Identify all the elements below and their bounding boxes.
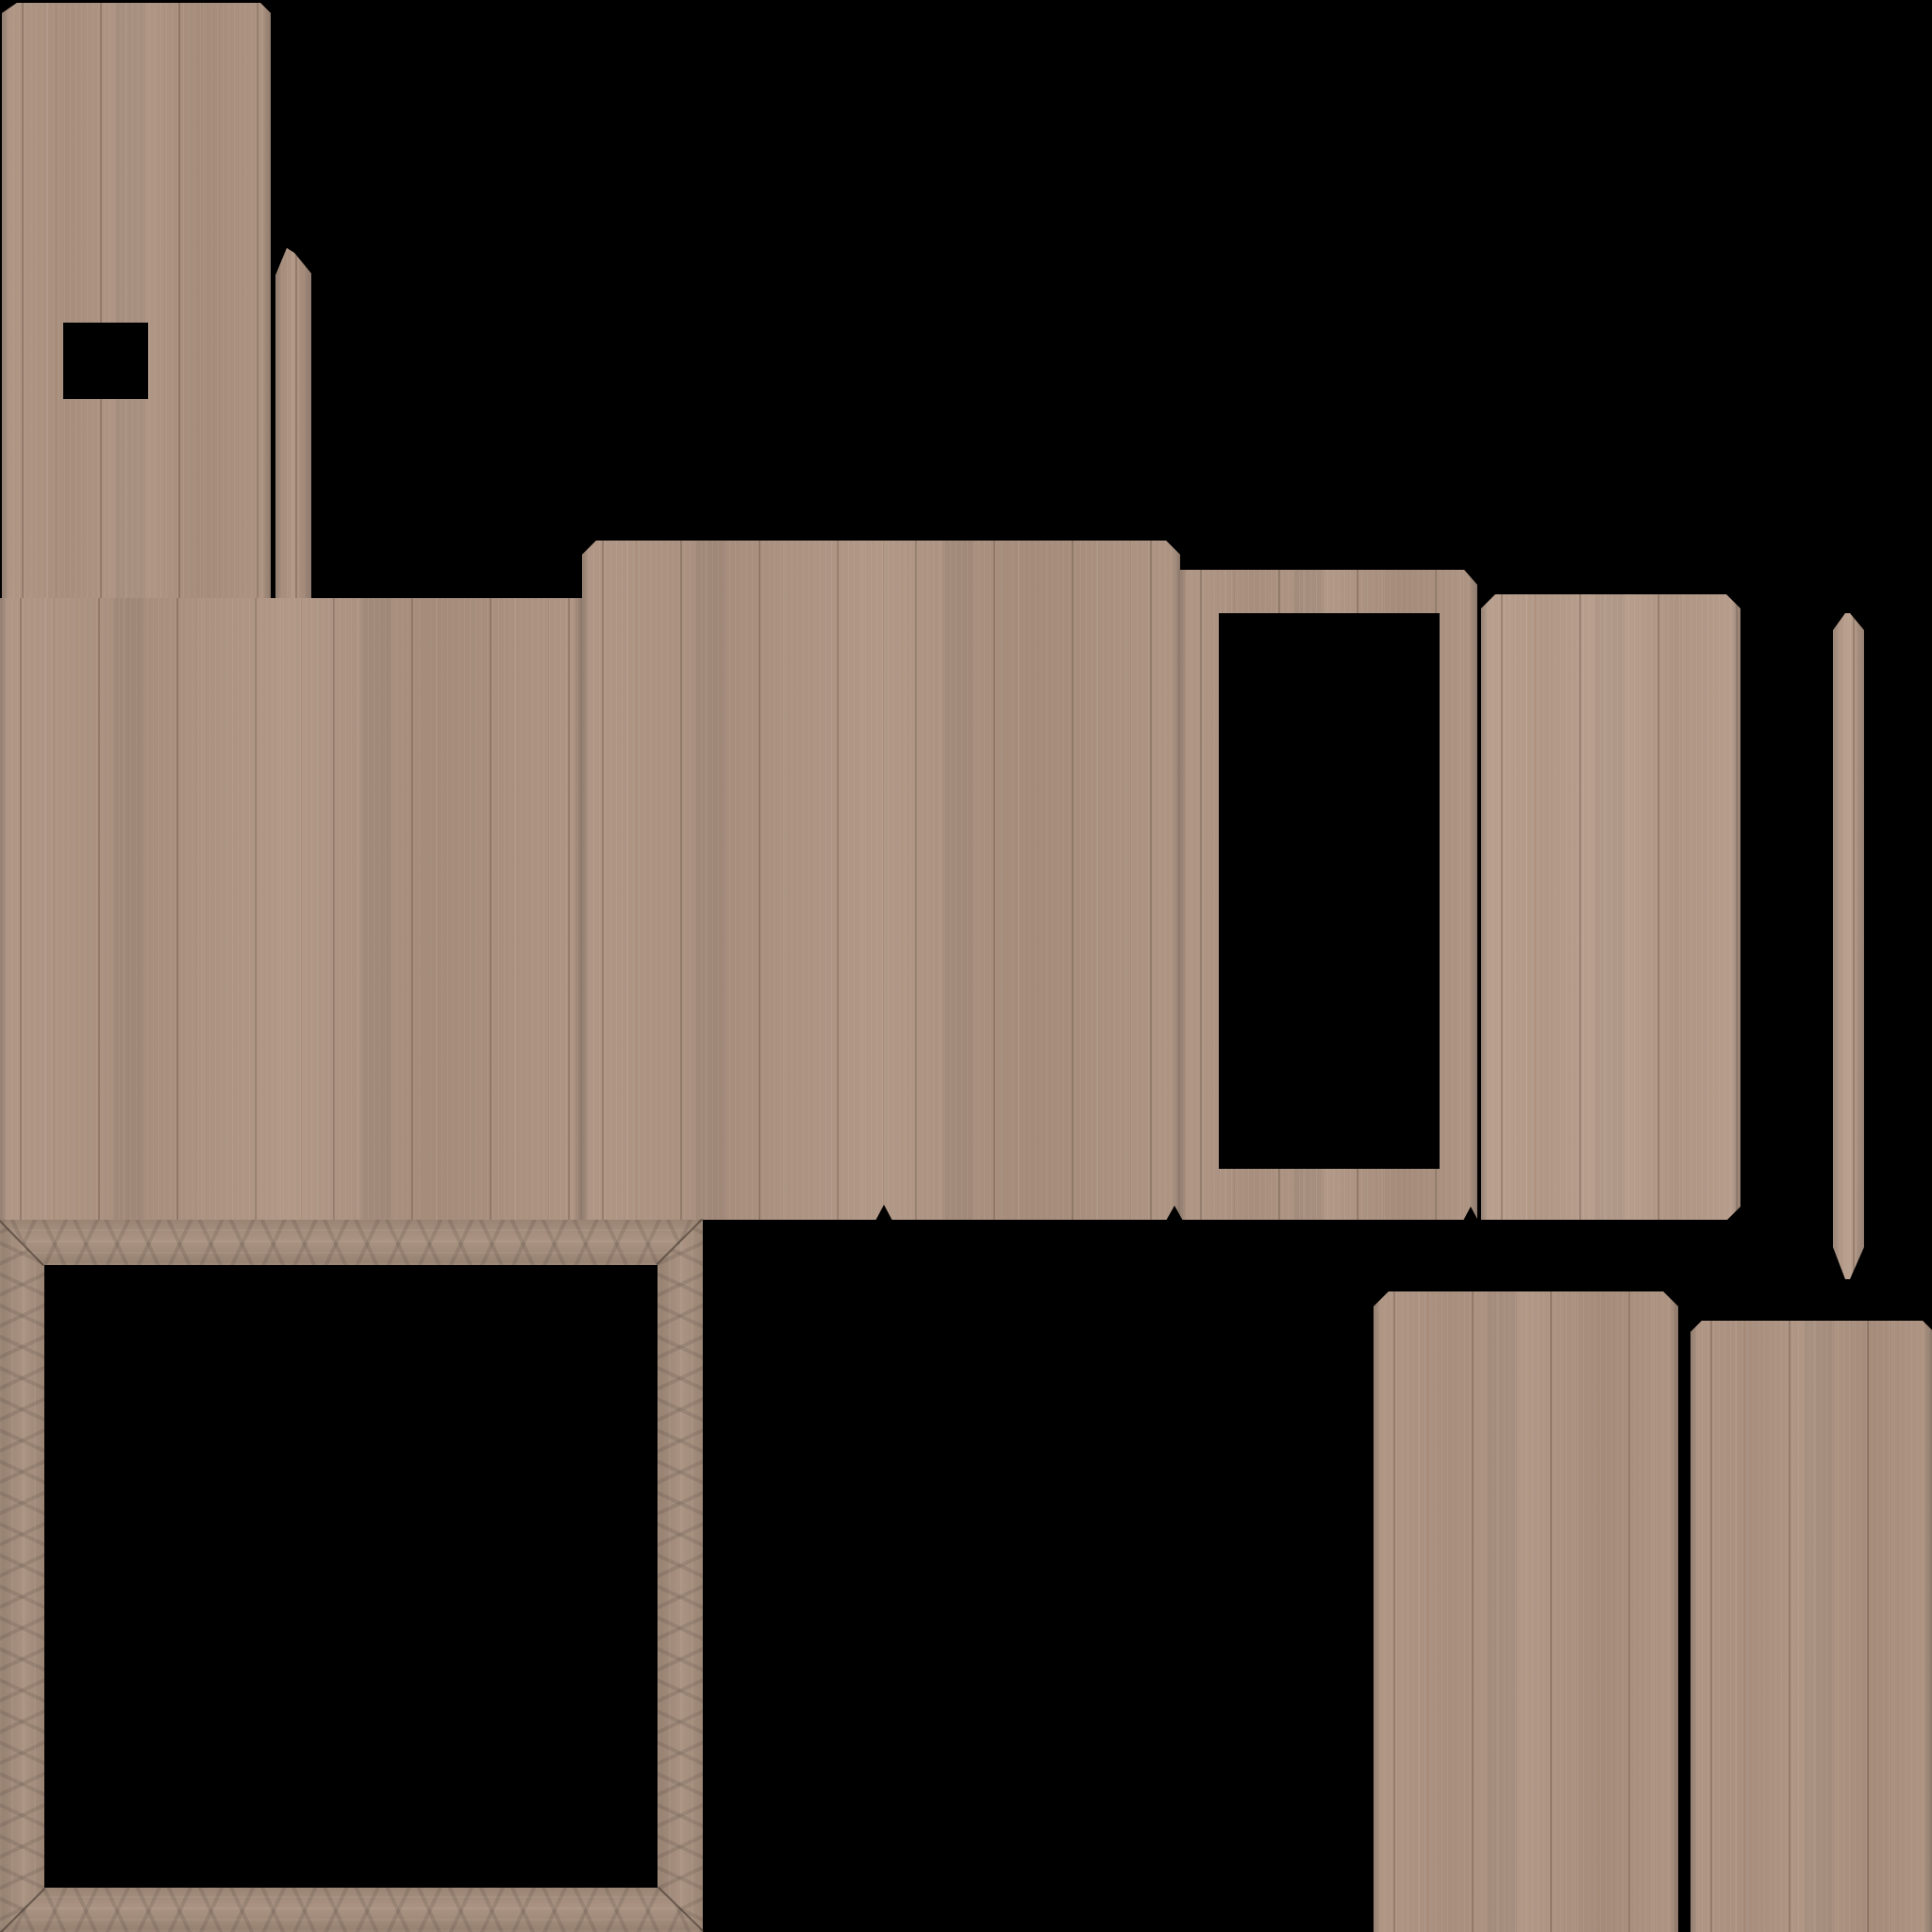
wood-knot — [111, 79, 115, 85]
wood-knot — [239, 831, 242, 835]
wood-knot — [1796, 1623, 1801, 1629]
wood-knot — [1844, 1715, 1865, 1743]
wood-knot — [1536, 1416, 1541, 1424]
wood-knot — [1395, 1625, 1399, 1629]
wood-knot — [102, 1179, 108, 1185]
wood-knot — [347, 840, 353, 847]
wood-knot — [276, 575, 281, 582]
wood-knot — [56, 1013, 62, 1021]
wood-knot — [555, 1053, 561, 1062]
wood-knot — [1554, 1663, 1557, 1668]
wood-knot — [1644, 1672, 1652, 1684]
wood-knot — [786, 589, 793, 597]
wood-knot — [653, 569, 665, 584]
wood-knot — [1426, 1383, 1429, 1388]
cutout-band-window-hole — [1219, 613, 1440, 1169]
wood-knot — [1583, 1780, 1586, 1783]
wood-knot — [1103, 1099, 1106, 1102]
wood-knot — [26, 342, 46, 367]
wood-knot — [1418, 1187, 1424, 1195]
wood-knot — [1144, 774, 1152, 786]
wood-knot — [1759, 1387, 1766, 1398]
wood-knot — [88, 429, 93, 436]
wood-knot — [103, 455, 108, 463]
wood-knot — [361, 664, 366, 671]
wood-knot — [43, 129, 56, 147]
wood-knot — [937, 869, 942, 878]
wood-knot — [382, 729, 388, 738]
wood-knot — [1582, 1674, 1586, 1678]
wood-knot — [480, 722, 485, 728]
wood-knot — [66, 1068, 75, 1079]
wood-knot — [1757, 1354, 1759, 1358]
wood-knot — [110, 254, 117, 262]
wood-knot — [1825, 1867, 1830, 1873]
wood-knot — [936, 841, 942, 849]
wood-knot — [53, 403, 58, 411]
wood-knot — [109, 1062, 115, 1070]
wood-knot — [1524, 1896, 1528, 1901]
wood-knot — [1172, 789, 1179, 797]
uv-island-frame-left-bar — [0, 1220, 44, 1932]
wood-knot — [215, 688, 218, 692]
uv-island-band-middle — [582, 541, 1180, 1220]
wood-knot — [598, 902, 604, 910]
wood-knot — [1449, 702, 1456, 709]
wood-knot — [360, 1152, 367, 1159]
wood-knot — [127, 849, 131, 855]
wood-knot — [1703, 1342, 1708, 1353]
wood-knot — [1124, 1005, 1129, 1011]
wood-knot — [230, 690, 235, 696]
wood-knot — [155, 818, 162, 829]
wood-knot — [627, 609, 637, 622]
wood-knot — [1597, 1314, 1604, 1322]
wood-knot — [330, 1121, 333, 1125]
uv-island-band-right — [1481, 594, 1740, 1220]
wood-knot — [1748, 1443, 1752, 1450]
wood-knot — [237, 1058, 240, 1062]
texture-atlas-canvas — [0, 0, 1932, 1932]
wood-knot — [1068, 1153, 1075, 1164]
wood-knot — [1565, 1812, 1570, 1820]
wood-knot — [611, 1125, 618, 1137]
wood-knot — [1808, 1838, 1815, 1848]
wood-knot — [109, 1001, 114, 1008]
wood-knot — [1410, 573, 1416, 582]
wood-knot — [461, 893, 464, 898]
wood-knot — [1474, 1376, 1480, 1387]
wood-knot — [27, 920, 29, 923]
wood-knot — [1406, 1798, 1414, 1808]
wood-knot — [730, 1124, 733, 1129]
wood-knot — [1446, 1664, 1449, 1669]
wood-knot — [208, 856, 224, 881]
wood-knot — [1081, 1097, 1086, 1104]
wood-knot — [509, 893, 515, 902]
wood-knot — [1690, 1735, 1703, 1757]
wood-knot — [353, 903, 357, 908]
wood-knot — [218, 285, 221, 288]
wood-knot — [10, 250, 13, 254]
wood-knot — [1379, 1718, 1385, 1724]
wood-knot — [611, 750, 619, 759]
wood-knot — [1676, 1507, 1692, 1530]
cutout-strip-square-hole — [63, 323, 148, 399]
wood-knot — [184, 742, 191, 752]
wood-knot — [666, 1104, 670, 1108]
wood-knot — [1173, 626, 1180, 639]
wood-knot — [1878, 1888, 1888, 1901]
wood-knot — [1153, 770, 1160, 779]
uv-island-frame-bottom-bar — [0, 1888, 703, 1932]
wood-knot — [1440, 970, 1441, 973]
wood-knot — [1474, 1682, 1478, 1687]
wood-knot — [1537, 1043, 1543, 1051]
wood-knot — [1757, 1722, 1760, 1726]
wood-knot — [1657, 1528, 1659, 1533]
wood-knot — [905, 567, 910, 574]
wood-knot — [911, 1130, 918, 1138]
wood-knot — [1397, 1390, 1402, 1397]
wood-knot — [1503, 923, 1510, 932]
wood-knot — [170, 77, 173, 82]
wood-knot — [1458, 1469, 1461, 1474]
wood-knot — [1645, 1484, 1651, 1492]
wood-knot — [1719, 1591, 1727, 1603]
wood-knot — [1536, 1364, 1540, 1369]
wood-knot — [564, 757, 569, 763]
wood-knot — [1491, 1704, 1494, 1707]
wood-knot — [948, 1036, 952, 1041]
wood-knot — [310, 1164, 315, 1169]
wood-knot — [108, 765, 121, 786]
wood-knot — [1458, 1357, 1461, 1361]
wood-knot — [1684, 896, 1692, 908]
wood-knot — [1651, 680, 1659, 692]
wood-knot — [193, 835, 199, 841]
wood-knot — [1425, 1846, 1433, 1854]
wood-knot — [585, 573, 599, 593]
wood-knot — [1072, 591, 1076, 596]
wood-knot — [1714, 1052, 1723, 1061]
wood-knot — [1902, 1395, 1906, 1399]
wood-knot — [181, 824, 184, 826]
wood-knot — [1631, 1555, 1640, 1564]
wood-knot — [1714, 853, 1735, 877]
wood-knot — [1462, 1381, 1468, 1388]
wood-knot — [338, 1066, 343, 1074]
wood-knot — [571, 881, 576, 890]
wood-knot — [1597, 797, 1605, 808]
wood-knot — [1472, 1330, 1479, 1341]
wood-knot — [1621, 1551, 1624, 1556]
wood-knot — [646, 632, 652, 638]
wood-knot — [1784, 1473, 1790, 1479]
wood-knot — [14, 715, 17, 719]
wood-knot — [1148, 879, 1152, 884]
wood-knot — [462, 1164, 467, 1171]
wood-knot — [1824, 1363, 1827, 1368]
wood-knot — [235, 1143, 238, 1148]
wood-knot — [223, 945, 225, 949]
wood-knot — [1703, 1578, 1708, 1585]
wood-knot — [1730, 1497, 1736, 1506]
wood-knot — [1160, 944, 1165, 951]
wood-knot — [1478, 1888, 1485, 1896]
wood-knot — [518, 848, 528, 860]
wood-knot — [16, 1038, 19, 1041]
wood-knot — [7, 566, 9, 569]
wood-knot — [351, 770, 355, 774]
wood-knot — [253, 840, 258, 846]
wood-knot — [768, 647, 786, 670]
wood-knot — [42, 817, 51, 828]
wood-knot — [5, 520, 19, 539]
wood-knot — [155, 327, 161, 337]
wood-knot — [140, 64, 156, 88]
wood-knot — [852, 1072, 858, 1083]
wood-knot — [1549, 1606, 1554, 1610]
wood-knot — [1477, 1641, 1481, 1645]
wood-knot — [1026, 941, 1031, 947]
wood-knot — [1807, 1566, 1810, 1570]
wood-knot — [1520, 1504, 1524, 1510]
wood-knot — [815, 741, 821, 747]
wood-knot — [391, 922, 394, 928]
wood-knot — [1378, 1628, 1381, 1631]
wood-knot — [256, 1082, 261, 1091]
wood-knot — [335, 1179, 342, 1190]
wood-knot — [1444, 756, 1451, 765]
wood-knot — [1632, 1520, 1639, 1527]
wood-knot — [655, 546, 661, 556]
wood-knot — [1928, 1524, 1931, 1528]
wood-knot — [1722, 875, 1733, 891]
wood-knot — [418, 853, 437, 881]
wood-knot — [283, 294, 289, 301]
wood-knot — [1594, 1446, 1601, 1454]
wood-knot — [1617, 1848, 1621, 1852]
wood-knot — [1887, 1348, 1892, 1357]
wood-knot — [1518, 866, 1522, 871]
wood-knot — [270, 941, 273, 944]
wood-knot — [153, 1160, 157, 1164]
wood-knot — [940, 857, 945, 866]
wood-knot — [463, 869, 468, 874]
wood-knot — [936, 604, 942, 611]
wood-knot — [491, 599, 495, 606]
wood-knot — [17, 445, 23, 452]
wood-knot — [518, 947, 523, 952]
wood-knot — [4, 340, 8, 344]
uv-island-bottom-block-right — [1690, 1321, 1932, 1932]
wood-knot — [1710, 1336, 1715, 1342]
wood-knot — [287, 1009, 291, 1014]
wood-knot — [162, 731, 168, 739]
wood-knot — [808, 623, 810, 626]
wood-knot — [166, 681, 172, 688]
wood-knot — [1220, 1199, 1236, 1218]
wood-knot — [152, 420, 171, 444]
wood-knot — [1618, 1620, 1623, 1626]
wood-knot — [102, 81, 106, 86]
wood-knot — [1461, 1369, 1465, 1374]
wood-knot — [1675, 1807, 1685, 1818]
wood-knot — [553, 1067, 558, 1076]
wood-knot — [699, 878, 706, 886]
wood-knot — [1674, 1556, 1676, 1561]
wood-knot — [1036, 1007, 1045, 1020]
wood-knot — [384, 1145, 390, 1153]
wood-knot — [46, 493, 48, 496]
uv-island-frame-top-bar — [0, 1220, 703, 1265]
wood-knot — [1845, 917, 1849, 922]
wood-knot — [693, 661, 711, 682]
wood-knot — [354, 1023, 360, 1030]
wood-knot — [864, 705, 867, 708]
uv-island-top-strip-main — [2, 3, 271, 600]
wood-knot — [1718, 913, 1723, 921]
wood-knot — [249, 776, 257, 787]
wood-knot — [142, 409, 145, 413]
wood-knot — [1503, 1307, 1506, 1312]
wood-knot — [223, 1211, 226, 1219]
wood-knot — [1058, 747, 1075, 772]
wood-knot — [1865, 1703, 1868, 1707]
uv-island-divider-strip — [1833, 613, 1864, 1279]
wood-knot — [1102, 1061, 1107, 1068]
wood-knot — [232, 529, 236, 534]
wood-knot — [141, 666, 145, 672]
wood-knot — [49, 490, 65, 509]
wood-knot — [1526, 1445, 1534, 1457]
wood-knot — [1118, 806, 1125, 814]
wood-knot — [684, 1048, 700, 1069]
wood-knot — [1545, 1407, 1551, 1415]
wood-knot — [109, 809, 114, 817]
wood-knot — [27, 56, 30, 58]
wood-knot — [1524, 1746, 1527, 1752]
wood-knot — [363, 951, 368, 957]
wood-knot — [1533, 1731, 1536, 1735]
wood-knot — [1131, 1152, 1135, 1157]
wood-knot — [278, 496, 284, 503]
wood-knot — [105, 427, 108, 433]
wood-knot — [1584, 1342, 1591, 1351]
wood-knot — [300, 1174, 309, 1185]
wood-knot — [205, 259, 208, 263]
wood-knot — [1900, 1471, 1903, 1476]
wood-knot — [1492, 1676, 1496, 1682]
wood-knot — [1557, 1918, 1565, 1928]
wood-knot — [838, 1149, 841, 1155]
wood-knot — [1664, 1710, 1673, 1722]
wood-knot — [58, 647, 61, 653]
wood-knot — [1479, 1326, 1485, 1333]
wood-knot — [1729, 1085, 1736, 1092]
wood-knot — [1429, 1890, 1433, 1893]
wood-knot — [1131, 617, 1137, 624]
wood-knot — [75, 969, 78, 974]
wood-knot — [844, 1149, 850, 1158]
wood-knot — [861, 1207, 866, 1216]
wood-knot — [1595, 1543, 1599, 1548]
wood-knot — [1533, 1803, 1538, 1808]
wood-knot — [1604, 1607, 1613, 1619]
wood-knot — [526, 938, 544, 965]
wood-knot — [1511, 1422, 1518, 1428]
wood-knot — [426, 1129, 430, 1134]
wood-knot — [1440, 1583, 1446, 1592]
wood-knot — [639, 769, 645, 777]
wood-knot — [1654, 1876, 1676, 1906]
wood-knot — [647, 575, 652, 581]
wood-knot — [525, 907, 527, 910]
wood-knot — [1877, 1759, 1886, 1772]
wood-knot — [568, 1162, 573, 1167]
wood-knot — [1721, 1556, 1726, 1563]
wood-knot — [1402, 1561, 1407, 1570]
wood-knot — [113, 205, 118, 211]
wood-knot — [911, 1009, 917, 1017]
wood-knot — [466, 1172, 482, 1192]
wood-knot — [821, 890, 827, 896]
wood-knot — [365, 600, 372, 608]
wood-knot — [753, 695, 757, 700]
wood-knot — [1557, 1419, 1564, 1431]
wood-knot — [60, 1170, 63, 1174]
wood-knot — [126, 150, 139, 169]
wood-knot — [396, 819, 405, 831]
wood-knot — [41, 1052, 45, 1058]
wood-knot — [222, 894, 227, 901]
wood-knot — [1585, 810, 1590, 817]
wood-knot — [626, 736, 641, 755]
wood-knot — [154, 831, 158, 837]
wood-knot — [85, 981, 92, 992]
wood-knot — [873, 1175, 878, 1183]
wood-knot — [1467, 1571, 1473, 1577]
wood-knot — [918, 1071, 924, 1077]
wood-knot — [491, 904, 494, 908]
wood-knot — [1721, 1634, 1726, 1641]
wood-knot — [975, 882, 979, 889]
wood-knot — [918, 1147, 925, 1158]
wood-knot — [1241, 1201, 1245, 1207]
wood-knot — [272, 1127, 279, 1138]
wood-knot — [1569, 1846, 1590, 1871]
wood-knot — [13, 806, 16, 810]
wood-knot — [76, 240, 79, 243]
wood-knot — [1728, 1646, 1735, 1656]
wood-knot — [1460, 706, 1466, 714]
wood-knot — [469, 750, 476, 758]
wood-knot — [36, 379, 39, 383]
wood-knot — [1522, 1657, 1532, 1673]
uv-island-bottom-block-left — [1374, 1291, 1678, 1932]
wood-knot — [1668, 939, 1674, 946]
wood-knot — [1713, 1521, 1721, 1532]
wood-knot — [268, 680, 286, 708]
wood-knot — [1840, 644, 1845, 650]
wood-knot — [1579, 1058, 1584, 1064]
wood-knot — [1461, 1321, 1464, 1325]
wood-knot — [1611, 1460, 1619, 1472]
wood-knot — [1413, 1333, 1417, 1338]
wood-knot — [116, 281, 124, 291]
wood-knot — [1605, 1832, 1607, 1836]
